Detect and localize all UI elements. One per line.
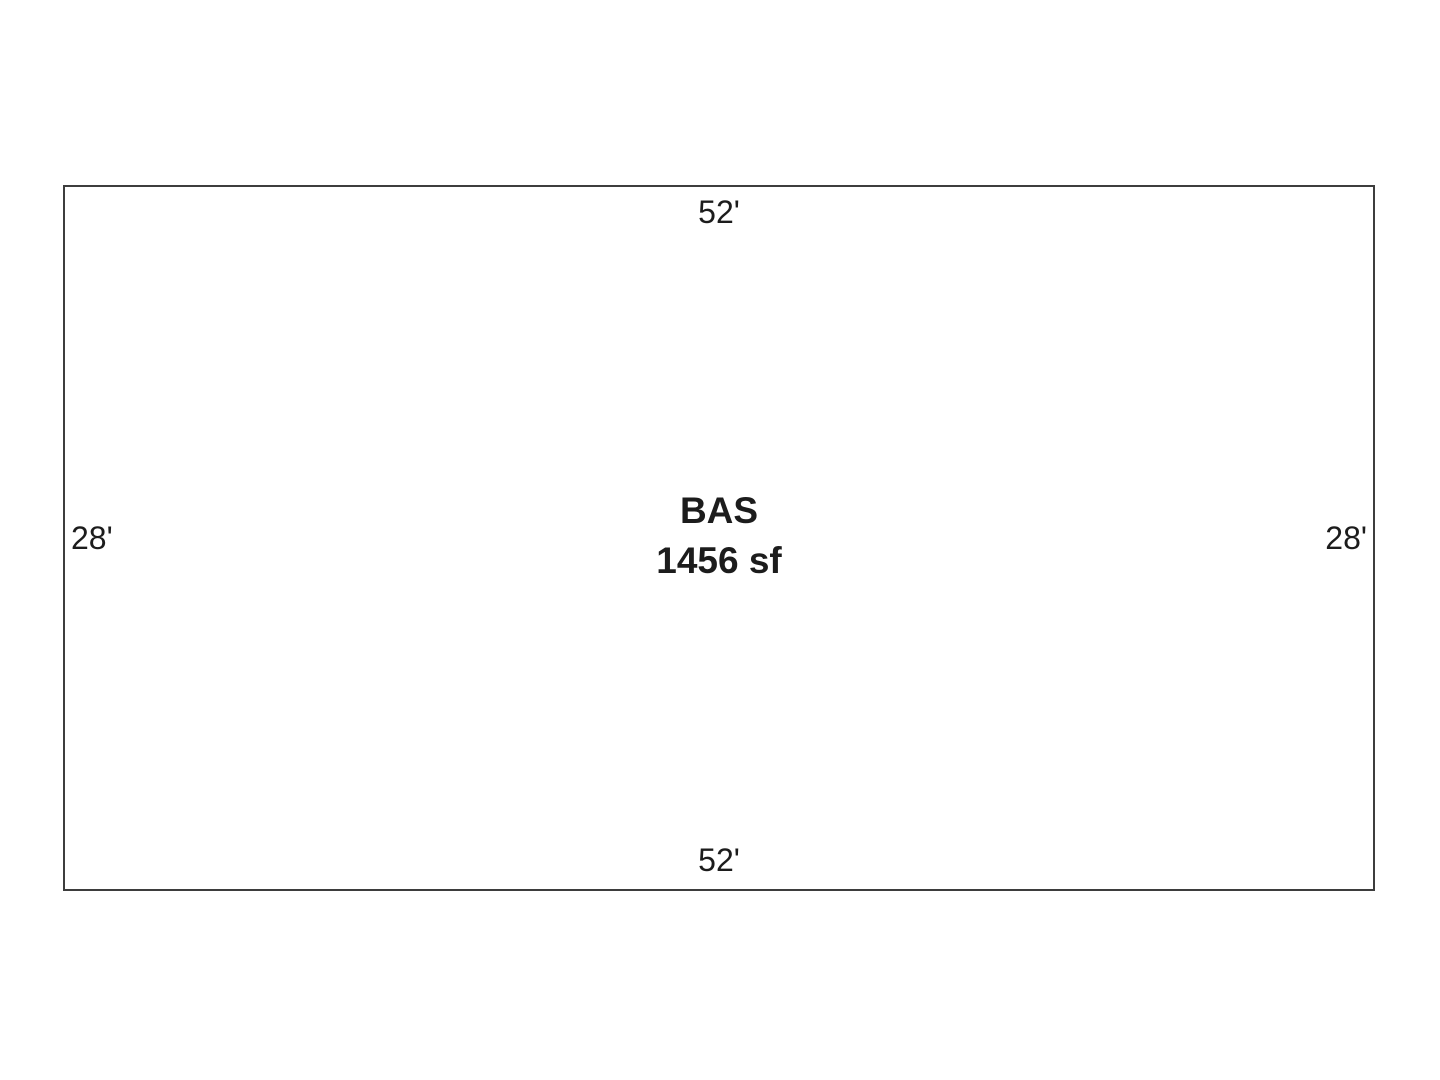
dimension-label-left: 28' — [71, 522, 113, 554]
area-label-group: BAS 1456 sf — [656, 486, 782, 586]
dimension-label-top: 52' — [698, 196, 740, 228]
building-outline-bas: 52' 52' 28' 28' BAS 1456 sf — [63, 185, 1375, 891]
area-size: 1456 sf — [656, 536, 782, 586]
dimension-label-right: 28' — [1325, 522, 1367, 554]
dimension-label-bottom: 52' — [698, 844, 740, 876]
area-code: BAS — [656, 486, 782, 536]
sketch-canvas: 52' 52' 28' 28' BAS 1456 sf — [0, 0, 1440, 1080]
